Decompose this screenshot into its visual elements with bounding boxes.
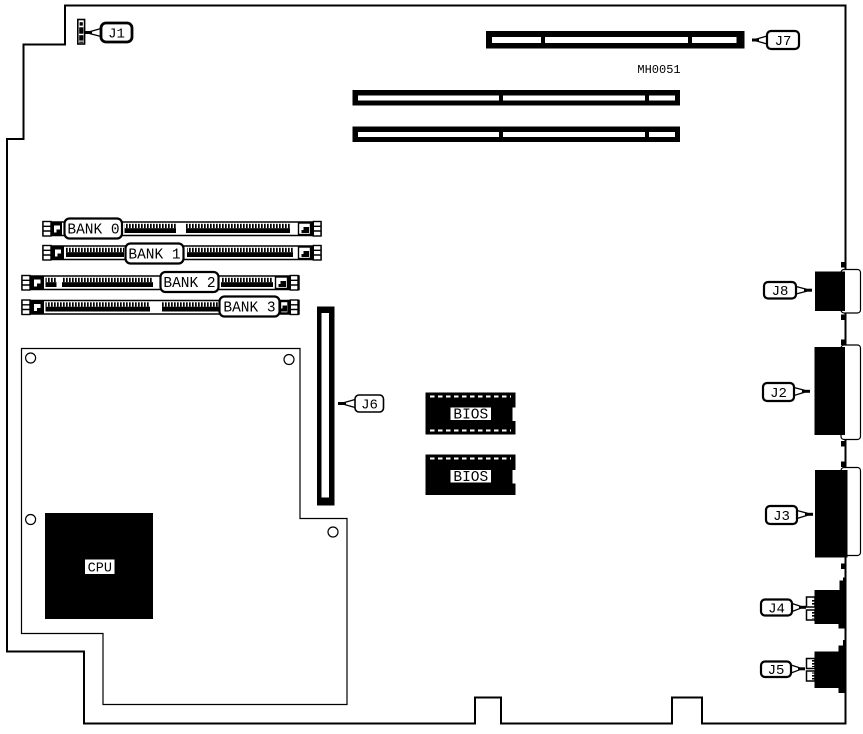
svg-text:BANK 1: BANK 1 — [128, 248, 180, 264]
svg-text:J1: J1 — [108, 27, 125, 43]
svg-text:MH0051: MH0051 — [637, 63, 680, 77]
svg-text:BANK 2: BANK 2 — [163, 276, 215, 292]
svg-text:J5: J5 — [768, 663, 785, 679]
svg-text:BANK 3: BANK 3 — [223, 301, 275, 317]
svg-text:J6: J6 — [361, 398, 378, 414]
svg-text:J2: J2 — [770, 386, 787, 402]
svg-text:CPU: CPU — [88, 562, 112, 577]
svg-text:J7: J7 — [775, 34, 792, 50]
svg-text:J3: J3 — [773, 509, 790, 525]
svg-text:J8: J8 — [772, 284, 789, 300]
svg-text:J4: J4 — [768, 602, 785, 618]
svg-text:BANK 0: BANK 0 — [67, 223, 119, 239]
svg-text:BIOS: BIOS — [453, 470, 488, 486]
svg-text:BIOS: BIOS — [453, 408, 488, 424]
